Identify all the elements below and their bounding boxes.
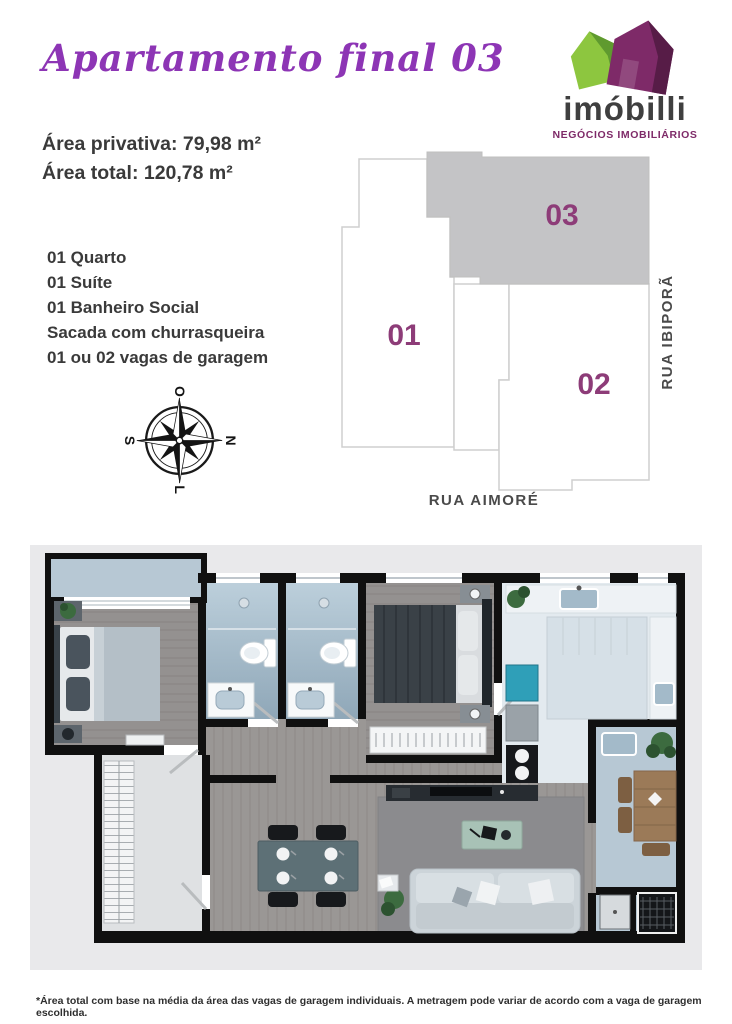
chair bbox=[642, 843, 670, 856]
site-plan: 01 02 03 RUA IBIPORÃ RUA AIMORÉ bbox=[332, 142, 690, 522]
unit-02-label: 02 bbox=[577, 368, 610, 401]
sink-icon bbox=[296, 691, 324, 709]
houses-logo-icon bbox=[550, 10, 700, 96]
chair bbox=[268, 892, 298, 907]
street-label-right: RUA IBIPORÃ bbox=[658, 274, 676, 389]
unit-03-label: 03 bbox=[545, 199, 578, 232]
page: Apartamento final 03 imóbilli NEGÓCIOS I… bbox=[0, 0, 732, 1024]
suite bbox=[370, 585, 492, 753]
street-label-bottom: RUA AIMORÉ bbox=[429, 492, 540, 509]
brand-name: imóbilli bbox=[530, 92, 720, 125]
dining-table bbox=[258, 841, 358, 891]
sink-icon bbox=[602, 733, 636, 755]
feature-item: 01 Banheiro Social bbox=[47, 295, 268, 320]
unit-03-shape-highlighted bbox=[427, 152, 649, 284]
chair bbox=[268, 825, 298, 840]
pillow bbox=[66, 635, 90, 669]
shower-icon bbox=[319, 598, 329, 608]
unit-02-shape bbox=[499, 284, 649, 490]
area-total: Área total: 120,78 m² bbox=[42, 159, 261, 188]
shower-icon bbox=[239, 598, 249, 608]
area-info: Área privativa: 79,98 m² Área total: 120… bbox=[42, 130, 261, 188]
compass-east-label: L bbox=[172, 485, 188, 494]
sink-icon bbox=[216, 691, 244, 709]
page-title: Apartamento final 03 bbox=[42, 36, 505, 80]
wardrobe bbox=[370, 727, 486, 753]
compass-north-label: N bbox=[223, 435, 237, 445]
feature-item: Sacada com churrasqueira bbox=[47, 320, 268, 345]
sink-icon bbox=[654, 683, 674, 705]
chair bbox=[618, 807, 632, 833]
cabinet-gray bbox=[506, 705, 538, 741]
brand-logo: imóbilli NEGÓCIOS IMOBILIÁRIOS bbox=[530, 10, 720, 141]
pillow bbox=[66, 677, 90, 711]
footer-disclaimer: *Área total com base na média da área da… bbox=[36, 995, 706, 1019]
chair bbox=[316, 825, 346, 840]
tv-icon bbox=[430, 787, 492, 796]
quarto-bed-headboard bbox=[54, 625, 60, 723]
floor-plan bbox=[30, 545, 702, 970]
pillow bbox=[458, 611, 478, 651]
dresser bbox=[126, 735, 164, 745]
kitchen-island bbox=[547, 617, 647, 719]
feature-item: 01 ou 02 vagas de garagem bbox=[47, 345, 268, 370]
kitchen-sink-icon bbox=[560, 589, 598, 609]
stairwell bbox=[104, 761, 134, 923]
features-list: 01 Quarto 01 Suíte 01 Banheiro Social Sa… bbox=[47, 245, 268, 370]
cabinet-teal bbox=[506, 665, 538, 701]
suite-bed-headboard bbox=[482, 599, 492, 707]
compass-west-label: O bbox=[172, 386, 188, 397]
chair bbox=[316, 892, 346, 907]
brand-tagline: NEGÓCIOS IMOBILIÁRIOS bbox=[530, 129, 720, 141]
bedroom-balcony bbox=[48, 556, 204, 600]
pillow bbox=[528, 879, 554, 905]
pillow bbox=[458, 655, 478, 695]
feature-item: 01 Quarto bbox=[47, 245, 268, 270]
compass-rose-icon: N L S O bbox=[122, 383, 237, 498]
unit-01-label: 01 bbox=[387, 319, 420, 352]
area-private: Área privativa: 79,98 m² bbox=[42, 130, 261, 159]
feature-item: 01 Suíte bbox=[47, 270, 268, 295]
compass-south-label: S bbox=[122, 436, 138, 445]
chair bbox=[618, 777, 632, 803]
